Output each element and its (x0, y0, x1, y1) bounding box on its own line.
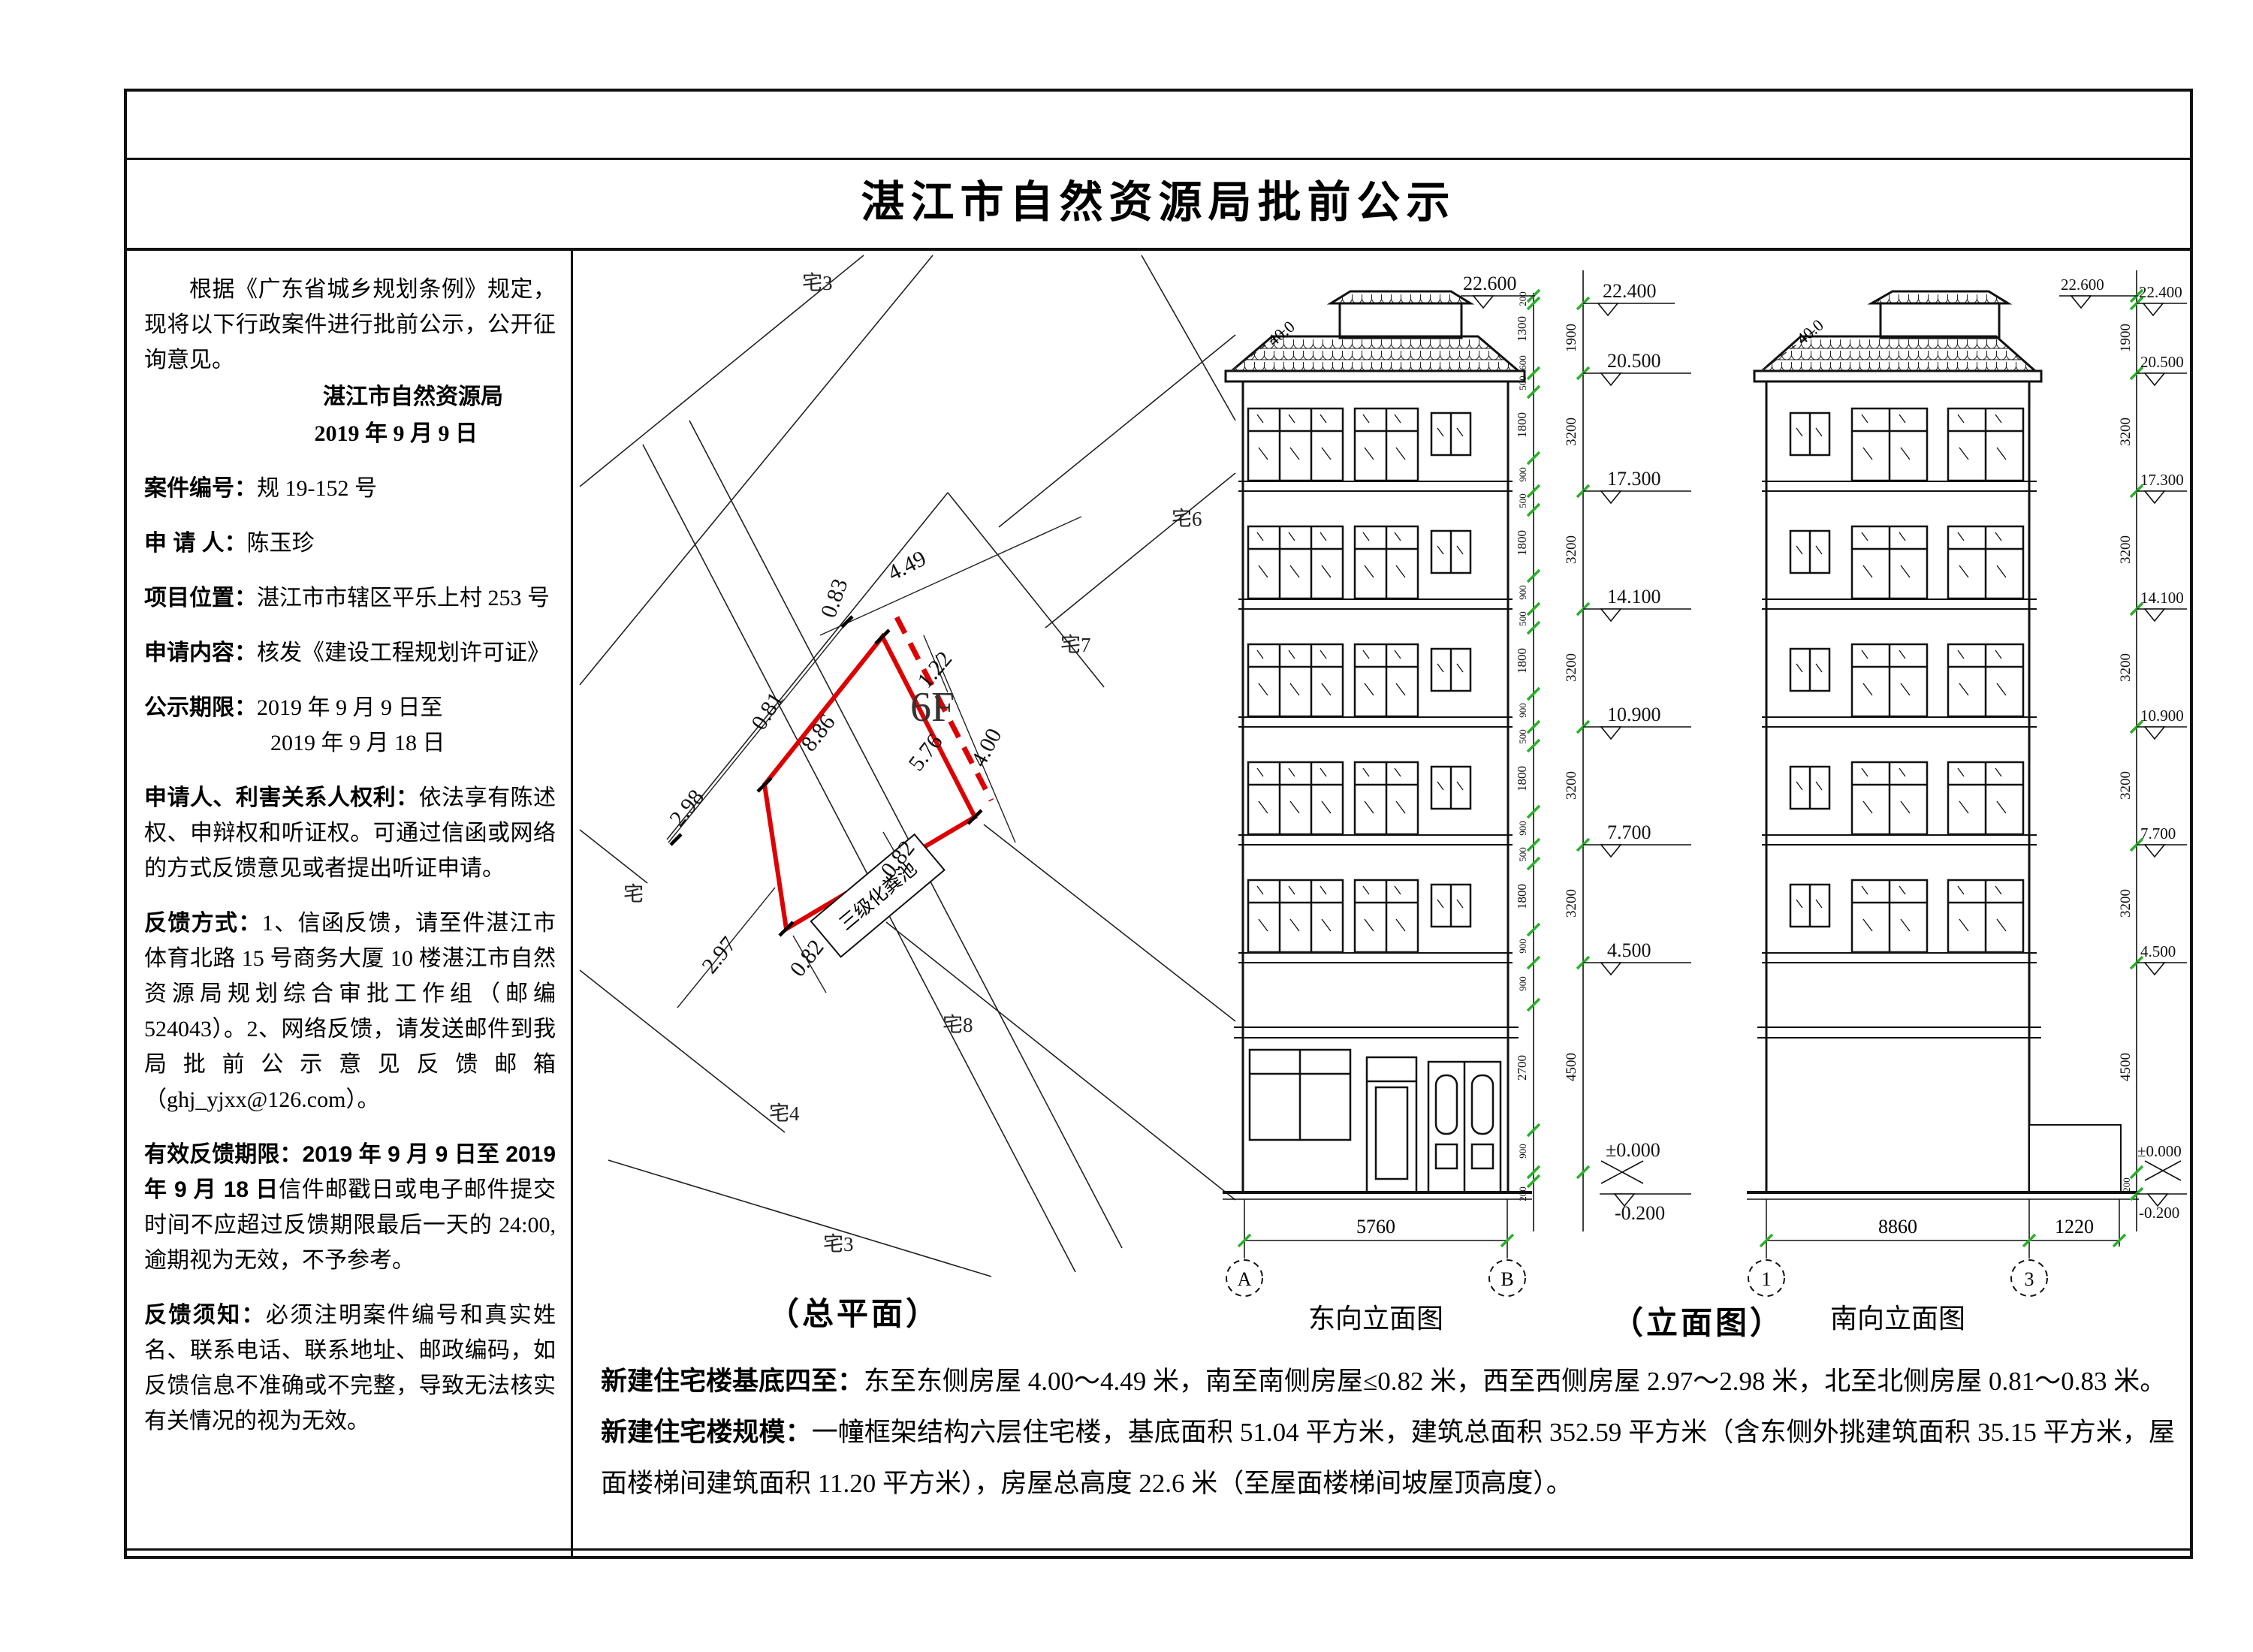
note-extents: 新建住宅楼基底四至：东至东侧房屋 4.00～4.49 米，南至南侧房屋≤0.82… (601, 1356, 2175, 1407)
drawings-svg: 三级化粪池 6F 2.98 2.97 0.81 0.83 4.49 1.22 8… (575, 250, 2190, 1350)
svg-text:±0.000: ±0.000 (1606, 1139, 1660, 1161)
svg-text:宅7: 宅7 (1060, 634, 1091, 656)
svg-text:3200: 3200 (2118, 771, 2134, 800)
field-period-value2: 2019 年 9 月 18 日 (144, 725, 556, 761)
issue-date: 2019 年 9 月 9 日 (144, 416, 556, 451)
svg-text:宅4: 宅4 (769, 1102, 800, 1125)
svg-text:宅: 宅 (623, 883, 644, 906)
field-content: 申请内容：核发《建设工程规划许可证》 (144, 635, 556, 671)
field-case-no: 案件编号：规 19-152 号 (144, 471, 556, 506)
svg-text:22.600: 22.600 (2061, 276, 2104, 294)
svg-text:0.83: 0.83 (816, 575, 853, 621)
par-deadline-label: 有效反馈期限： (144, 1142, 302, 1167)
svg-text:宅6: 宅6 (1172, 508, 1202, 530)
note-scale: 新建住宅楼规模：一幢框架结构六层住宅楼，基底面积 51.04 平方米，建筑总面积… (601, 1407, 2175, 1509)
zero-level-cross (1601, 1161, 1643, 1183)
field-period: 公示期限：2019 年 9 月 9 日至2019 年 9 月 18 日 (144, 690, 556, 761)
field-location-value: 湛江市市辖区平乐上村 253 号 (257, 586, 550, 610)
svg-text:4.00: 4.00 (967, 725, 1007, 771)
svg-text:1900: 1900 (2118, 324, 2134, 352)
svg-text:200: 200 (2121, 1177, 2132, 1192)
east-elevation: 40.0 (1223, 291, 1532, 1334)
svg-text:3200: 3200 (1564, 889, 1579, 918)
svg-text:3200: 3200 (2118, 418, 2134, 446)
page-title: 湛江市自然资源局批前公示 (127, 159, 2190, 246)
par-notice: 反馈须知：必须注明案件编号和真实姓名、联系电话、联系地址、邮政编码，如反馈信息不… (144, 1298, 556, 1439)
svg-text:3200: 3200 (1564, 653, 1579, 682)
cadastral-lines (580, 255, 1235, 1277)
east-elevation-title: 东向立面图 (1308, 1304, 1443, 1334)
right-zero-cross (2145, 1161, 2181, 1180)
east-width-dim: 5760 (1356, 1216, 1395, 1237)
svg-text:900: 900 (1517, 585, 1528, 600)
note-extents-label: 新建住宅楼基底四至： (601, 1367, 864, 1396)
svg-text:1800: 1800 (1515, 766, 1529, 791)
right-dim-column: 1900 3200 3200 3200 3200 3200 4500 200 2… (2059, 270, 2187, 1231)
svg-text:2.98: 2.98 (665, 785, 709, 831)
svg-text:600: 600 (1517, 355, 1528, 370)
field-period-value1: 2019 年 9 月 9 日至 (257, 695, 443, 720)
svg-text:1800: 1800 (1515, 530, 1529, 556)
field-content-value: 核发《建设工程规划许可证》 (257, 641, 550, 665)
svg-text:500: 500 (1517, 375, 1528, 390)
svg-text:20.500: 20.500 (1607, 350, 1661, 372)
svg-text:900: 900 (1517, 703, 1528, 718)
svg-text:14.100: 14.100 (2140, 589, 2184, 607)
par-rights: 申请人、利害关系人权利：依法享有陈述权、申辩权和听证权。可通过信函或网络的方式反… (144, 780, 556, 886)
frame-top-outer (124, 89, 2193, 92)
svg-text:500: 500 (1517, 729, 1528, 744)
svg-text:22.600: 22.600 (1463, 273, 1517, 294)
svg-text:22.400: 22.400 (2139, 283, 2182, 301)
svg-text:17.300: 17.300 (1607, 468, 1661, 490)
south-grid-1-label: 1 (1762, 1268, 1772, 1290)
svg-text:3200: 3200 (1564, 771, 1579, 800)
svg-text:3200: 3200 (2118, 653, 2134, 682)
south-elevation-title: 南向立面图 (1830, 1304, 1965, 1334)
svg-text:±0.000: ±0.000 (2137, 1142, 2182, 1160)
frame-bottom-outer (124, 1556, 2193, 1559)
south-width-dim2: 1220 (2055, 1216, 2094, 1237)
notes: 新建住宅楼基底四至：东至东侧房屋 4.00～4.49 米，南至南侧房屋≤0.82… (601, 1356, 2175, 1509)
svg-text:4.500: 4.500 (1607, 939, 1651, 961)
svg-text:8.86: 8.86 (796, 710, 840, 756)
field-case-value: 规 19-152 号 (257, 476, 377, 501)
south-width-dim: 8860 (1878, 1216, 1917, 1237)
site-plan: 三级化粪池 6F 2.98 2.97 0.81 0.83 4.49 1.22 8… (580, 255, 1235, 1277)
south-elevation: 40.0 8860 1220 1 3 南向立面图 (1747, 291, 2139, 1334)
svg-text:14.100: 14.100 (1607, 586, 1661, 607)
field-content-label: 申请内容： (144, 641, 257, 665)
svg-text:3200: 3200 (1564, 535, 1579, 564)
sidebar-divider (571, 248, 573, 1558)
svg-text:3200: 3200 (1564, 418, 1579, 446)
right-chain-dims: 1900 3200 3200 3200 3200 3200 4500 200 (2118, 324, 2134, 1192)
svg-text:宅3: 宅3 (802, 272, 833, 294)
svg-text:500: 500 (1517, 493, 1528, 508)
svg-text:0.82: 0.82 (785, 935, 828, 981)
svg-text:900: 900 (1517, 939, 1528, 954)
field-location: 项目位置：湛江市市辖区平乐上村 253 号 (144, 580, 556, 616)
intro-paragraph: 根据《广东省城乡规划条例》规定，现将以下行政案件进行批前公示，公开征询意见。 (144, 272, 556, 378)
svg-text:1800: 1800 (1515, 648, 1529, 674)
east-grid-A-label: A (1238, 1268, 1252, 1290)
issuer: 湛江市自然资源局 (144, 379, 556, 415)
svg-text:200: 200 (1517, 1186, 1528, 1201)
field-applicant: 申 请 人：陈玉珍 (144, 526, 556, 561)
svg-text:17.300: 17.300 (2140, 471, 2184, 489)
svg-text:-0.200: -0.200 (1615, 1202, 1665, 1224)
outer-chain-dims: 200 1300 600 500 1800 900 500 1800 900 5… (1515, 291, 1529, 1201)
svg-text:5.76: 5.76 (903, 729, 947, 776)
svg-text:900: 900 (1517, 976, 1528, 991)
frame-bottom-inner (124, 1548, 2193, 1551)
svg-text:900: 900 (1517, 1144, 1528, 1159)
svg-text:7.700: 7.700 (2140, 824, 2176, 843)
sidebar: 根据《广东省城乡规划条例》规定，现将以下行政案件进行批前公示，公开征询意见。 湛… (144, 261, 556, 1439)
svg-text:4500: 4500 (1564, 1053, 1579, 1081)
south-grid-3-label: 3 (2025, 1268, 2034, 1290)
svg-text:-0.200: -0.200 (2139, 1204, 2179, 1222)
svg-text:4.500: 4.500 (2140, 942, 2176, 960)
svg-text:3200: 3200 (2118, 889, 2134, 918)
par-feedback-text: 1、信函反馈，请至件湛江市体育北路 15 号商务大厦 10 楼湛江市自然资源局规… (144, 911, 556, 1112)
field-period-label: 公示期限： (144, 695, 257, 720)
field-applicant-value: 陈玉珍 (247, 531, 315, 556)
svg-text:1900: 1900 (1564, 324, 1579, 352)
elevations-caption: （立面图） (1612, 1298, 1784, 1343)
par-feedback-label: 反馈方式： (144, 911, 262, 936)
par-deadline: 有效反馈期限：2019 年 9 月 9 日至 2019 年 9 月 18 日信件… (144, 1137, 556, 1278)
field-case-label: 案件编号： (144, 476, 257, 501)
svg-text:2.97: 2.97 (697, 932, 741, 978)
svg-text:200: 200 (1517, 291, 1528, 306)
svg-text:3200: 3200 (2118, 535, 2134, 564)
svg-text:1800: 1800 (1515, 884, 1529, 909)
field-location-label: 项目位置： (144, 586, 257, 610)
note-scale-label: 新建住宅楼规模： (601, 1418, 812, 1447)
svg-text:2700: 2700 (1515, 1055, 1529, 1081)
svg-text:宅3: 宅3 (823, 1233, 854, 1256)
svg-text:7.700: 7.700 (1607, 821, 1651, 843)
east-grid-B-label: B (1500, 1268, 1513, 1290)
svg-text:4.49: 4.49 (884, 546, 930, 586)
note-extents-text: 东至东侧房屋 4.00～4.49 米，南至南侧房屋≤0.82 米，西至西侧房屋 … (864, 1367, 2166, 1396)
par-notice-label: 反馈须知： (144, 1303, 266, 1328)
svg-text:4500: 4500 (2118, 1053, 2134, 1081)
svg-text:1800: 1800 (1515, 412, 1529, 438)
svg-text:500: 500 (1517, 847, 1528, 862)
septic-tank: 三级化粪池 (811, 834, 945, 957)
frame-left (124, 89, 127, 1559)
plan-dim-lines (668, 517, 1081, 1008)
svg-text:10.900: 10.900 (2140, 707, 2184, 725)
svg-text:10.900: 10.900 (1607, 704, 1661, 725)
svg-text:1300: 1300 (1515, 316, 1529, 342)
frame-right (2190, 89, 2193, 1559)
par-rights-label: 申请人、利害关系人权利： (144, 785, 419, 810)
par-feedback: 反馈方式：1、信函反馈，请至件湛江市体育北路 15 号商务大厦 10 楼湛江市自… (144, 906, 556, 1117)
svg-text:22.400: 22.400 (1603, 280, 1657, 302)
svg-text:500: 500 (1517, 611, 1528, 626)
site-plan-caption: （总平面） (768, 1289, 940, 1334)
svg-text:900: 900 (1517, 821, 1528, 836)
svg-text:20.500: 20.500 (2140, 353, 2184, 371)
svg-text:900: 900 (1517, 467, 1528, 482)
field-applicant-label: 申 请 人： (144, 531, 247, 556)
note-scale-text: 一幢框架结构六层住宅楼，基底面积 51.04 平方米，建筑总面积 352.59 … (601, 1418, 2175, 1498)
svg-text:宅8: 宅8 (943, 1014, 973, 1036)
